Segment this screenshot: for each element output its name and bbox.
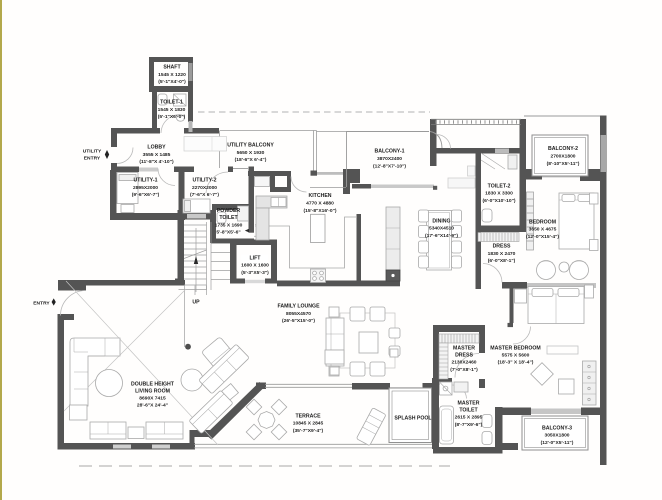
svg-text:5650 X 1930: 5650 X 1930 [237,150,265,156]
svg-text:SHAFT: SHAFT [163,65,181,71]
svg-text:(11'-8"X 4'-10"): (11'-8"X 4'-10") [139,159,174,165]
svg-text:UP: UP [192,300,200,306]
svg-text:2270X2000: 2270X2000 [192,185,217,191]
svg-text:TOILET: TOILET [219,215,238,221]
svg-text:SPLASH POOL: SPLASH POOL [394,416,432,422]
svg-text:(5'-1"X6'-0"): (5'-1"X6'-0") [158,114,186,120]
svg-text:UTILITY: UTILITY [83,149,102,155]
svg-text:(35'-7"X9'-4"): (35'-7"X9'-4") [293,428,324,434]
svg-text:1735 X 1690: 1735 X 1690 [215,222,243,228]
svg-text:UTILITY-2: UTILITY-2 [193,178,217,184]
svg-text:(15'-8"X16'-0"): (15'-8"X16'-0") [303,208,336,214]
svg-text:2700X1800: 2700X1800 [550,154,575,160]
svg-text:(7'-6"X 6'-7"): (7'-6"X 6'-7") [190,192,219,198]
svg-text:(6'-0"X8'-1"): (6'-0"X8'-1") [488,258,516,264]
svg-text:5'-8"X5'-6": 5'-8"X5'-6" [216,230,240,236]
svg-text:KITCHEN: KITCHEN [308,193,331,199]
svg-text:MASTER BEDROOM: MASTER BEDROOM [490,345,540,351]
svg-text:BEDROOM: BEDROOM [529,219,556,225]
svg-text:(18'-3" X 18'-4"): (18'-3" X 18'-4") [498,360,534,366]
svg-text:1600 X 1600: 1600 X 1600 [241,263,269,269]
svg-text:POWDER: POWDER [217,208,241,214]
svg-text:TOILET-2: TOILET-2 [488,183,511,189]
svg-text:ENTRY: ENTRY [84,156,101,162]
svg-text:(9'-6"X6'-7"): (9'-6"X6'-7") [132,192,160,198]
svg-text:(8'-10"X5'-11"): (8'-10"X5'-11") [547,161,580,167]
svg-text:UTILITY-1: UTILITY-1 [134,178,158,184]
svg-text:BALCONY-2: BALCONY-2 [548,146,578,152]
svg-text:(7'-0"X8'-1"): (7'-0"X8'-1") [450,367,478,373]
svg-text:MASTER: MASTER [458,400,480,406]
svg-text:1545 X 1830: 1545 X 1830 [158,107,186,113]
svg-text:(5'-3"X5'-3"): (5'-3"X5'-3") [241,270,269,276]
svg-text:5575 X 5600: 5575 X 5600 [502,352,530,358]
svg-text:(8'-7"X9'-6"): (8'-7"X9'-6") [455,422,483,428]
svg-text:1545 X 1220: 1545 X 1220 [158,72,186,78]
svg-text:3650 X 4675: 3650 X 4675 [529,227,557,233]
svg-text:1830 X 3300: 1830 X 3300 [485,191,513,197]
svg-text:8690X 7415: 8690X 7415 [139,396,166,402]
svg-text:28'-6"X 24'-4": 28'-6"X 24'-4" [137,402,168,408]
svg-text:DRESS: DRESS [493,244,511,250]
svg-text:(12'-0"X15'-4"): (12'-0"X15'-4") [526,234,559,240]
svg-text:DRESS: DRESS [455,353,473,359]
svg-text:(5'-1"X4'-0"): (5'-1"X4'-0") [158,79,186,85]
svg-text:(12'-8"X7'-10"): (12'-8"X7'-10") [373,163,406,169]
svg-text:2895X2000: 2895X2000 [133,185,158,191]
svg-text:(12'-0"X5'-11"): (12'-0"X5'-11") [541,440,574,446]
svg-text:ENTRY: ENTRY [33,301,50,307]
svg-text:MASTER: MASTER [453,345,475,351]
svg-text:2615 X 2895: 2615 X 2895 [455,415,483,421]
svg-text:UTILITY BALCONY: UTILITY BALCONY [227,143,274,149]
svg-text:(17'-6"X14'-9"): (17'-6"X14'-9") [425,233,458,239]
svg-text:8055X4570: 8055X4570 [286,311,311,317]
svg-text:BALCONY-1: BALCONY-1 [375,149,405,155]
svg-text:(26'-5"X15'-0"): (26'-5"X15'-0") [282,318,315,324]
svg-text:3870X2400: 3870X2400 [377,156,402,162]
svg-text:DOUBLE HEIGHT: DOUBLE HEIGHT [131,382,175,388]
svg-text:4770 X 4880: 4770 X 4880 [306,201,334,207]
svg-text:LIFT: LIFT [250,255,262,261]
svg-text:TOILET-1: TOILET-1 [160,100,183,106]
svg-text:DINING: DINING [432,218,450,224]
svg-text:BALCONY-3: BALCONY-3 [542,425,572,431]
svg-text:(18'-6"X 6'-4"): (18'-6"X 6'-4") [235,157,267,163]
svg-text:LOBBY: LOBBY [147,145,166,151]
svg-text:(6'-0"X10'-10"): (6'-0"X10'-10") [482,198,515,204]
svg-text:3050X1800: 3050X1800 [544,433,569,439]
svg-text:FAMILY LOUNGE: FAMILY LOUNGE [277,304,320,310]
svg-text:TOILET: TOILET [459,408,478,414]
svg-text:TERRACE: TERRACE [295,413,321,419]
svg-text:5340X4510: 5340X4510 [429,226,454,232]
svg-text:3555 X 1485: 3555 X 1485 [143,152,171,158]
svg-text:2130X2460: 2130X2460 [451,360,476,366]
svg-text:1830 X 2470: 1830 X 2470 [488,251,516,257]
svg-text:LIVING ROOM: LIVING ROOM [135,389,170,395]
svg-text:10845 X 2845: 10845 X 2845 [293,421,324,427]
